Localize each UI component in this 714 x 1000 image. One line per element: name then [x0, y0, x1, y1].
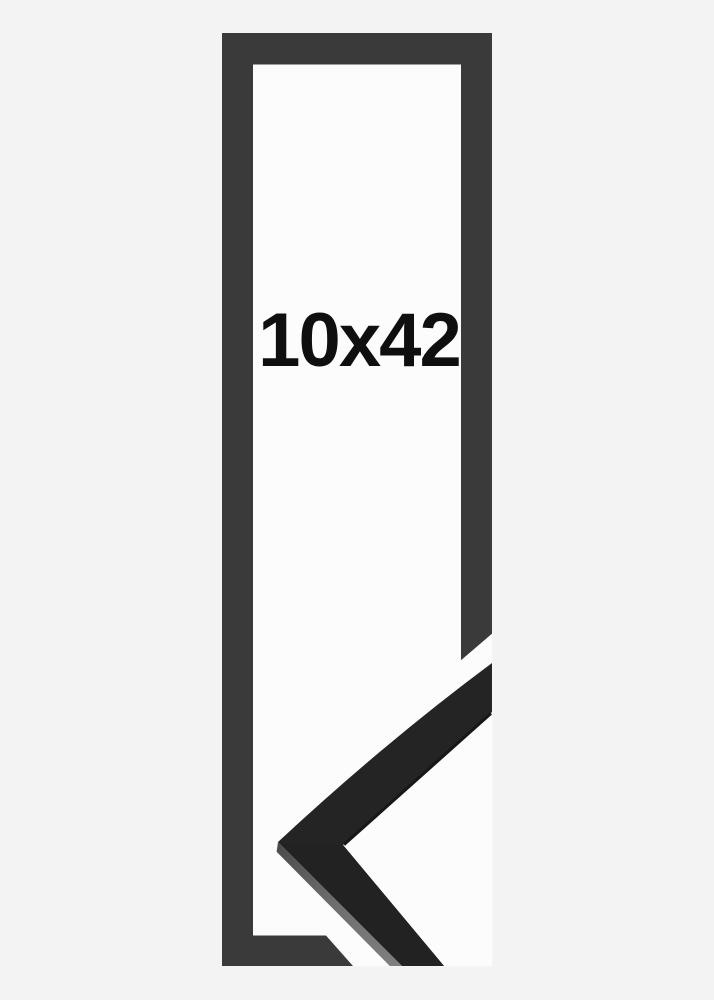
svg-text:10x42: 10x42: [258, 298, 460, 383]
